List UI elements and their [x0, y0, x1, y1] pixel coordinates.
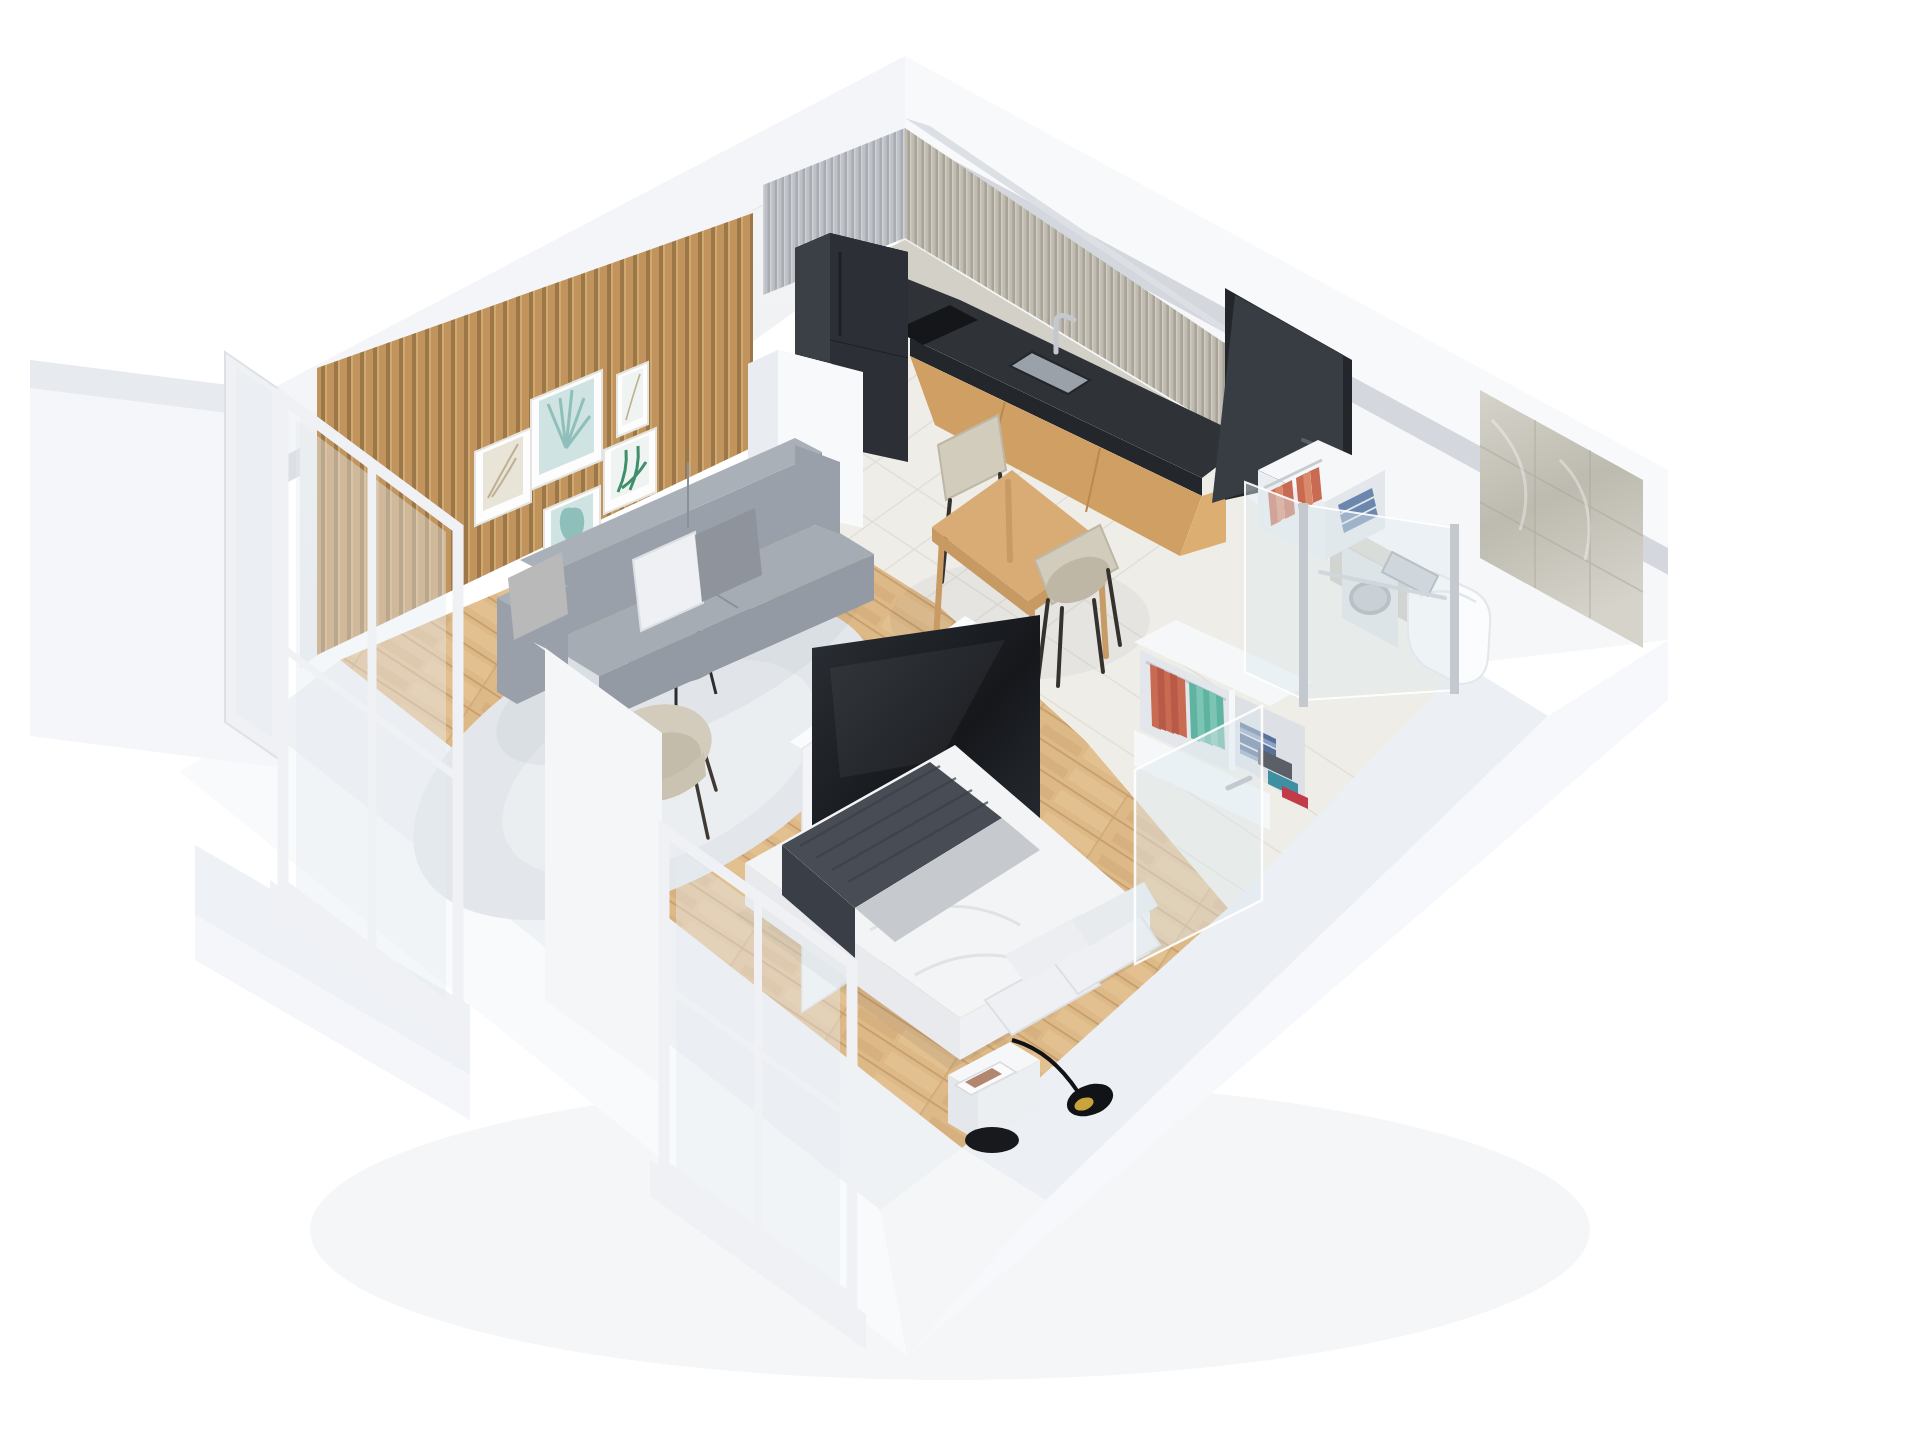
floorplan-render: [0, 0, 1920, 1440]
black-side-stool: [965, 1127, 1019, 1153]
glazed-strip-left: [225, 352, 283, 762]
glass-pane-1: [1245, 482, 1305, 700]
floorplan-stage: [0, 0, 1920, 1440]
glass-pane-2: [1305, 505, 1455, 700]
glazed-strip-glass: [236, 368, 272, 738]
glass-post-1: [1299, 503, 1308, 707]
glass-post-2: [1450, 524, 1459, 694]
